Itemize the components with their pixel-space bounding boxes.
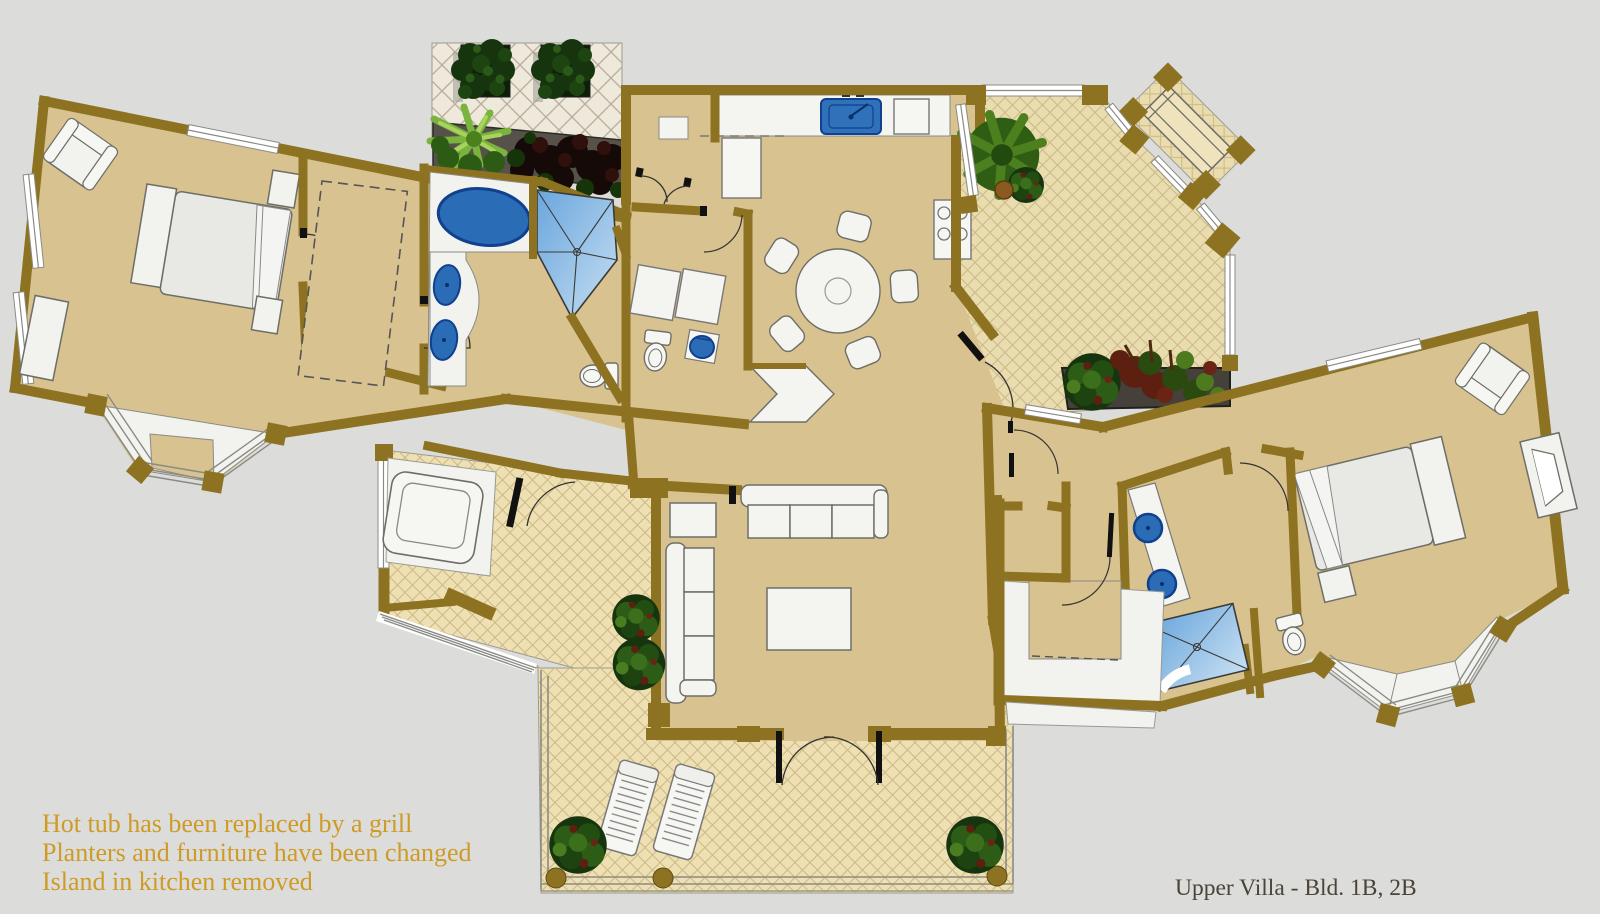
svg-text:Island in kitchen removed: Island in kitchen removed — [42, 867, 313, 896]
svg-text:Upper Villa - Bld. 1B, 2B: Upper Villa - Bld. 1B, 2B — [1175, 875, 1417, 901]
svg-text:Planters and furniture have be: Planters and furniture have been changed — [42, 838, 472, 867]
svg-text:Hot tub has been replaced by a: Hot tub has been replaced by a grill — [42, 809, 412, 838]
